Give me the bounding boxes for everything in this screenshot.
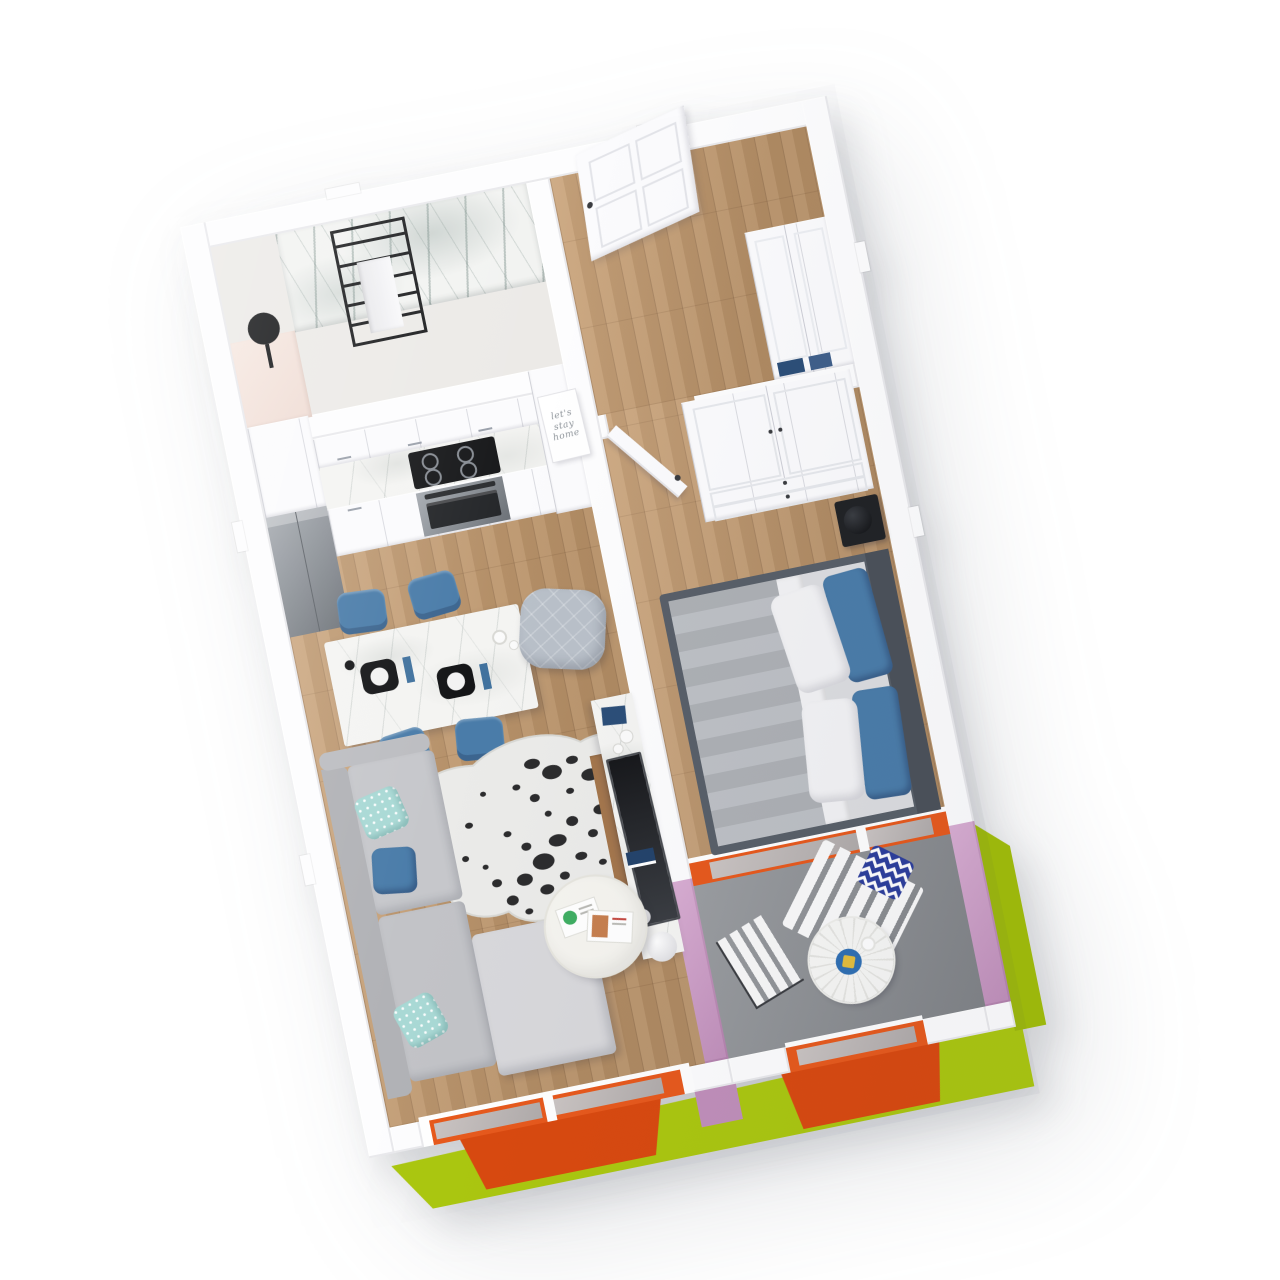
decanter [493,631,506,644]
placemat-plate [435,662,477,701]
floorplan-stage: let's stay home [0,0,1280,1280]
armchair [518,587,607,671]
napkin [479,663,492,690]
magazine [587,911,632,943]
sofa-pillow-blue [371,846,418,895]
apartment-floorplan: let's stay home [180,96,1016,1159]
bed-pillow-white [801,697,867,804]
dining-chair [336,588,389,636]
cup [344,659,356,671]
door-handle [587,201,593,210]
placemat-plate [359,657,401,696]
decor-box-navy [601,705,627,725]
cup [862,938,875,951]
candle [509,640,518,649]
snack [842,955,856,969]
napkin [402,656,415,683]
